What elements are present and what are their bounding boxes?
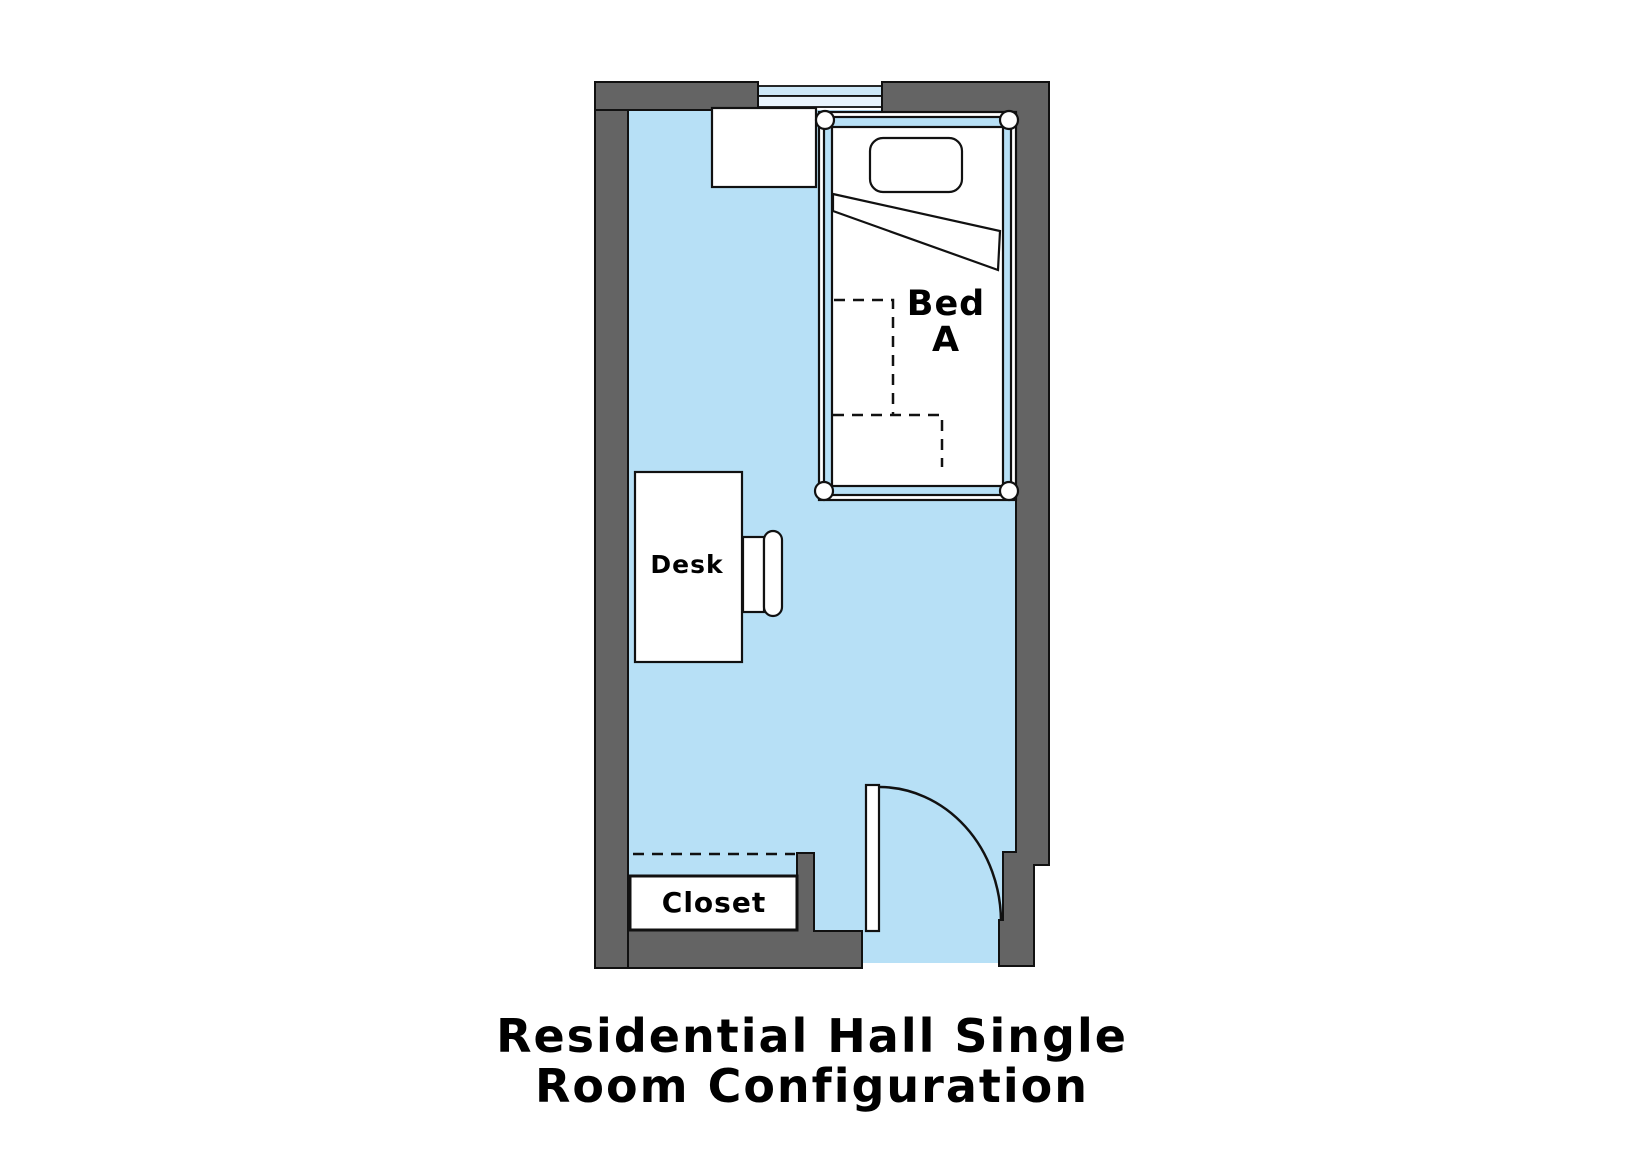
window-pane-lower [758, 96, 882, 107]
bed-label: Bed [907, 284, 985, 324]
desk-chair-back [764, 531, 782, 616]
window [758, 86, 882, 107]
bed-label-letter: A [932, 320, 960, 360]
title-line-2: Room Configuration [535, 1059, 1089, 1113]
bedpost-top-right [1000, 111, 1018, 129]
floor-plan-page: Bed A Desk Closet Residential Hall Singl… [0, 0, 1640, 1150]
window-pane-upper [758, 86, 882, 96]
bedpost-bottom-right [1000, 482, 1018, 500]
pillow [870, 138, 962, 192]
bed: Bed A [815, 111, 1018, 500]
exterior-wall-top [595, 82, 758, 110]
dresser [712, 108, 816, 187]
bedpost-bottom-left [815, 482, 833, 500]
title-line-1: Residential Hall Single [496, 1009, 1128, 1063]
bedpost-top-left [816, 111, 834, 129]
desk-label: Desk [650, 550, 724, 579]
exterior-wall-left [595, 82, 628, 968]
door-leaf [866, 785, 879, 931]
desk-chair-seat [743, 537, 764, 612]
floor-plan: Bed A Desk Closet Residential Hall Singl… [0, 0, 1640, 1150]
closet-label: Closet [662, 886, 766, 919]
